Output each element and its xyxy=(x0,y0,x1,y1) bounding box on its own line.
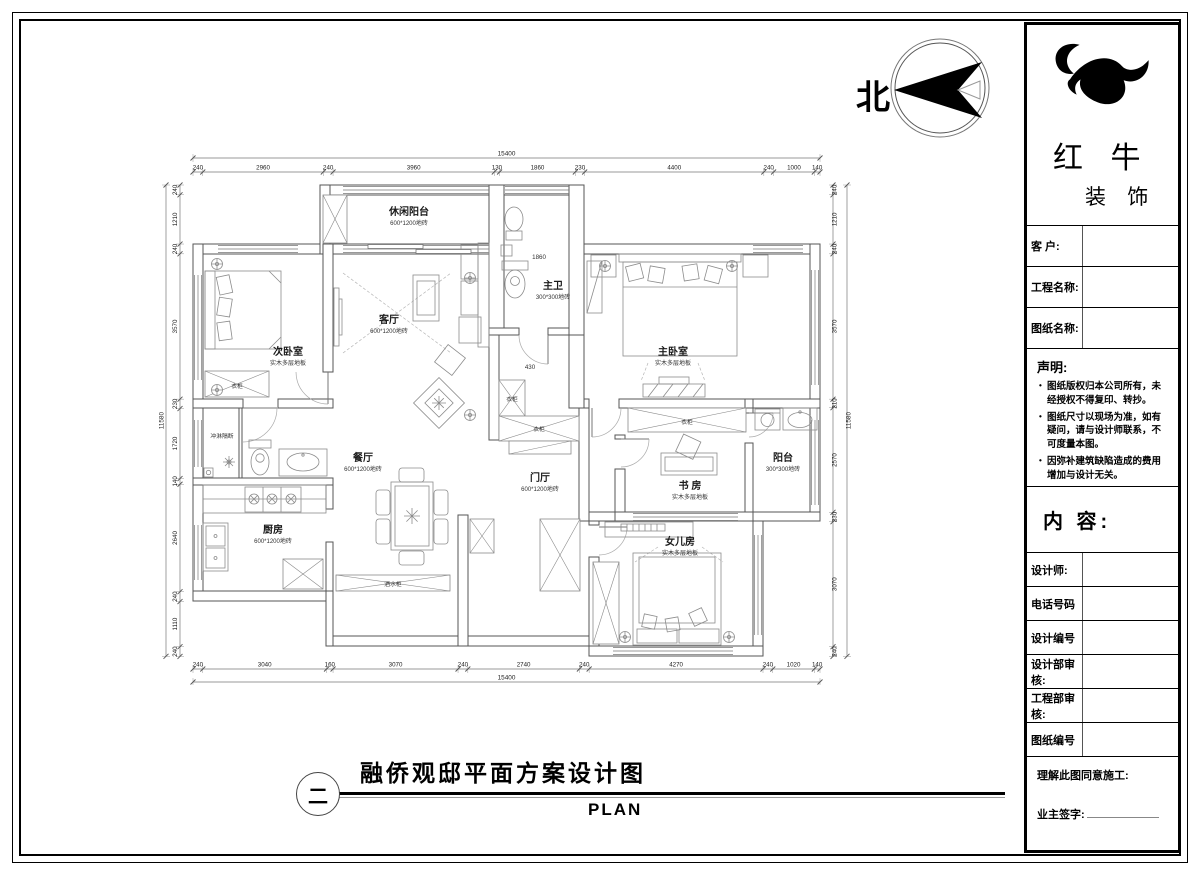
floor-plan: 2402960240396013018602304400240100014024… xyxy=(115,125,945,685)
dim-label: 1210 xyxy=(172,212,179,226)
dim-label: 240 xyxy=(172,243,179,254)
field-value xyxy=(1083,267,1178,307)
dim-label: 240 xyxy=(193,662,204,669)
dim-label: 240 xyxy=(832,184,839,195)
info-label: 电话号码 xyxy=(1027,587,1083,620)
dim-label: 2640 xyxy=(172,531,179,545)
info-value xyxy=(1083,723,1178,756)
dim-label: 240 xyxy=(172,184,179,195)
info-row-design-audit: 设计部审核: xyxy=(1027,655,1178,689)
bed-master xyxy=(619,254,741,262)
info-label: 设计部审核: xyxy=(1027,655,1083,688)
agreement-label: 理解此图同意施工: xyxy=(1037,767,1172,783)
room-sub-zhuwo: 实木多层地板 xyxy=(655,359,691,367)
field-value xyxy=(1083,308,1178,348)
room-sub-zhuwei: 300*300地砖 xyxy=(536,293,570,301)
dim-label: 1020 xyxy=(787,662,801,669)
info-row-sheet-no: 图纸编号 xyxy=(1027,723,1178,757)
dim-label: 240 xyxy=(832,243,839,254)
annotation-wardrobe-corridor: 衣柜 xyxy=(681,418,693,426)
signature-line xyxy=(1087,805,1159,818)
field-row-project: 工程名称: xyxy=(1027,267,1178,308)
room-sub-yangtai: 300*300地砖 xyxy=(766,465,800,473)
basin xyxy=(505,207,523,231)
statement-section: 声明: 图纸版权归本公司所有，未经授权不得复印、转抄。 图纸尺寸以现场为准，如有… xyxy=(1027,349,1178,487)
room-label-yangtai: 阳台 xyxy=(773,451,793,464)
info-value xyxy=(1083,689,1178,722)
room-sub-shufang: 实木多层地板 xyxy=(672,493,708,501)
dim-label: 3570 xyxy=(832,319,839,333)
bed-secondary xyxy=(205,271,281,349)
signature-label: 业主签字: xyxy=(1037,809,1085,821)
brand-name-2: 装 饰 xyxy=(1085,181,1156,211)
room-label-ciwo: 次卧室 xyxy=(273,345,303,358)
compass-icon xyxy=(888,36,992,140)
signature-section: 理解此图同意施工: 业主签字: xyxy=(1027,757,1178,857)
statement-item: 图纸版权归本公司所有，未经授权不得复印、转抄。 xyxy=(1039,380,1170,408)
annotation-wardrobe-ciwo: 衣柜 xyxy=(231,382,243,390)
info-value xyxy=(1083,621,1178,654)
door-swing-arc xyxy=(621,439,649,467)
dim-label: 240 xyxy=(579,662,590,669)
dim-label: 3070 xyxy=(832,577,839,591)
annotation-shower-partition: 冲淋隔断 xyxy=(210,432,233,440)
dim-label: 1860 xyxy=(531,165,545,172)
info-value xyxy=(1083,553,1178,586)
dim-label: 2570 xyxy=(832,453,839,467)
north-indicator: 北 xyxy=(840,36,1010,146)
dim-label: 230 xyxy=(575,165,586,172)
info-label: 工程部审核: xyxy=(1027,689,1083,722)
annotation-dim-1860: 1860 xyxy=(532,254,546,261)
drawing-subtitle: PLAN xyxy=(588,800,642,820)
dim-label: 240 xyxy=(764,165,775,172)
room-sub-canting: 600*1200地砖 xyxy=(344,465,382,473)
room-label-shufang: 书 房 xyxy=(679,479,702,492)
statement-item: 因弥补建筑缺陷造成的费用增加与设计无关。 xyxy=(1039,455,1170,483)
statement-title: 声明: xyxy=(1037,357,1170,376)
info-label: 设计编号 xyxy=(1027,621,1083,654)
dim-label: 4400 xyxy=(667,165,681,172)
brand-name: 红 牛 xyxy=(1053,133,1151,177)
room-label-menting: 门厅 xyxy=(530,471,550,484)
dim-label: 240 xyxy=(323,165,334,172)
room-label-zhuwo: 主卧室 xyxy=(658,345,688,358)
room-label-canting: 餐厅 xyxy=(352,451,373,464)
dim-label: 240 xyxy=(763,662,774,669)
room-sub-ciwo: 实木多层地板 xyxy=(270,359,306,367)
annotation-dim-430: 430 xyxy=(525,364,536,371)
sheet-index-badge: 二 xyxy=(296,772,340,816)
dim-label: 140 xyxy=(812,165,823,172)
dim-label: 240 xyxy=(832,646,839,657)
dim-label: 160 xyxy=(325,662,336,669)
door-swing-arc xyxy=(749,413,773,437)
drawing-sheet: { "north": { "label": "北" }, "footer": {… xyxy=(0,0,1200,875)
room-sub-menting: 600*1200地砖 xyxy=(521,485,559,493)
field-value xyxy=(1083,226,1178,266)
tv-cabinet xyxy=(334,288,339,346)
annotation-wardrobe-horizontal: 衣柜 xyxy=(533,425,545,433)
room-labels-layer: 休闲阳台600*1200地砖次卧室实木多层地板客厅600*1200地砖主卫300… xyxy=(210,205,800,588)
bull-logo-icon xyxy=(1047,39,1162,135)
room-sub-nverfang: 实木多层地板 xyxy=(662,549,698,557)
info-value xyxy=(1083,587,1178,620)
toilet xyxy=(502,261,528,270)
field-row-drawing: 图纸名称: xyxy=(1027,308,1178,349)
door-swing-arc xyxy=(592,408,621,437)
field-label: 客 户: xyxy=(1027,226,1083,266)
drawing-title: 融侨观邸平面方案设计图 xyxy=(360,754,646,788)
total-dim-label: 11580 xyxy=(846,412,853,430)
total-dim-label: 11580 xyxy=(159,412,166,430)
dim-label: 230 xyxy=(172,398,179,409)
annotation-wardrobe-vertical: 衣柜 xyxy=(506,395,518,403)
dim-label: 240 xyxy=(193,165,204,172)
dim-label: 1720 xyxy=(172,436,179,450)
field-label: 工程名称: xyxy=(1027,267,1083,307)
title-block: 红 牛 装 饰 客 户: 工程名称: 图纸名称: 声明: 图纸版权归本公司所有，… xyxy=(1024,22,1181,853)
info-value xyxy=(1083,655,1178,688)
dim-label: 3070 xyxy=(389,662,403,669)
title-underline xyxy=(318,792,1005,795)
toilet xyxy=(249,440,271,448)
brand-area: 红 牛 装 饰 xyxy=(1027,25,1178,226)
sofa xyxy=(478,243,489,347)
footer-title-bar: 二 融侨观邸平面方案设计图 PLAN xyxy=(290,752,1005,822)
room-sub-xiuxian: 600*1200地砖 xyxy=(390,219,428,227)
nightstand xyxy=(743,255,768,277)
info-row-design-no: 设计编号 xyxy=(1027,621,1178,655)
dim-label: 130 xyxy=(492,165,503,172)
room-label-nverfang: 女儿房 xyxy=(665,535,695,548)
room-label-chufang: 厨房 xyxy=(263,523,283,536)
info-label: 图纸编号 xyxy=(1027,723,1083,756)
dim-label: 2960 xyxy=(256,165,270,172)
title-underline-thin xyxy=(318,797,1005,798)
room-label-keting: 客厅 xyxy=(378,313,399,326)
dim-label: 140 xyxy=(812,662,823,669)
dim-label: 230 xyxy=(832,511,839,522)
dim-label: 3570 xyxy=(172,319,179,333)
dim-label: 240 xyxy=(172,591,179,602)
field-row-client: 客 户: xyxy=(1027,226,1178,267)
door-swing-arc xyxy=(519,335,548,364)
field-label: 图纸名称: xyxy=(1027,308,1083,348)
dim-label: 3040 xyxy=(258,662,272,669)
annotation-wine-cabinet: 酒水柜 xyxy=(384,580,402,588)
room-sub-chufang: 600*1200地砖 xyxy=(254,537,292,545)
dim-label: 1000 xyxy=(787,165,801,172)
dim-label: 1110 xyxy=(172,617,179,630)
room-label-xiuxian: 休闲阳台 xyxy=(388,205,429,218)
north-label: 北 xyxy=(856,70,890,119)
room-label-zhuwei: 主卫 xyxy=(543,279,563,292)
dim-label: 1210 xyxy=(832,212,839,226)
total-dim-label: 15400 xyxy=(498,151,516,158)
dim-label: 240 xyxy=(172,646,179,657)
desk-study xyxy=(661,453,717,475)
dim-label: 140 xyxy=(172,476,179,487)
total-dim-label: 15400 xyxy=(498,675,516,682)
statement-item: 图纸尺寸以现场为准，如有疑问，请与设计师联系，不可度量本图。 xyxy=(1039,411,1170,452)
dim-label: 3960 xyxy=(407,165,421,172)
dim-label: 210 xyxy=(832,398,839,409)
dim-label: 240 xyxy=(458,662,469,669)
room-sub-keting: 600*1200地砖 xyxy=(370,327,408,335)
info-row-designer: 设计师: xyxy=(1027,553,1178,587)
dim-label: 2740 xyxy=(517,662,531,669)
dim-label: 4270 xyxy=(669,662,683,669)
content-label: 内 容: xyxy=(1027,487,1178,553)
info-row-eng-audit: 工程部审核: xyxy=(1027,689,1178,723)
kitchen-sink xyxy=(203,523,228,571)
door-swing-arc xyxy=(243,408,277,442)
info-label: 设计师: xyxy=(1027,553,1083,586)
info-row-phone: 电话号码 xyxy=(1027,587,1178,621)
